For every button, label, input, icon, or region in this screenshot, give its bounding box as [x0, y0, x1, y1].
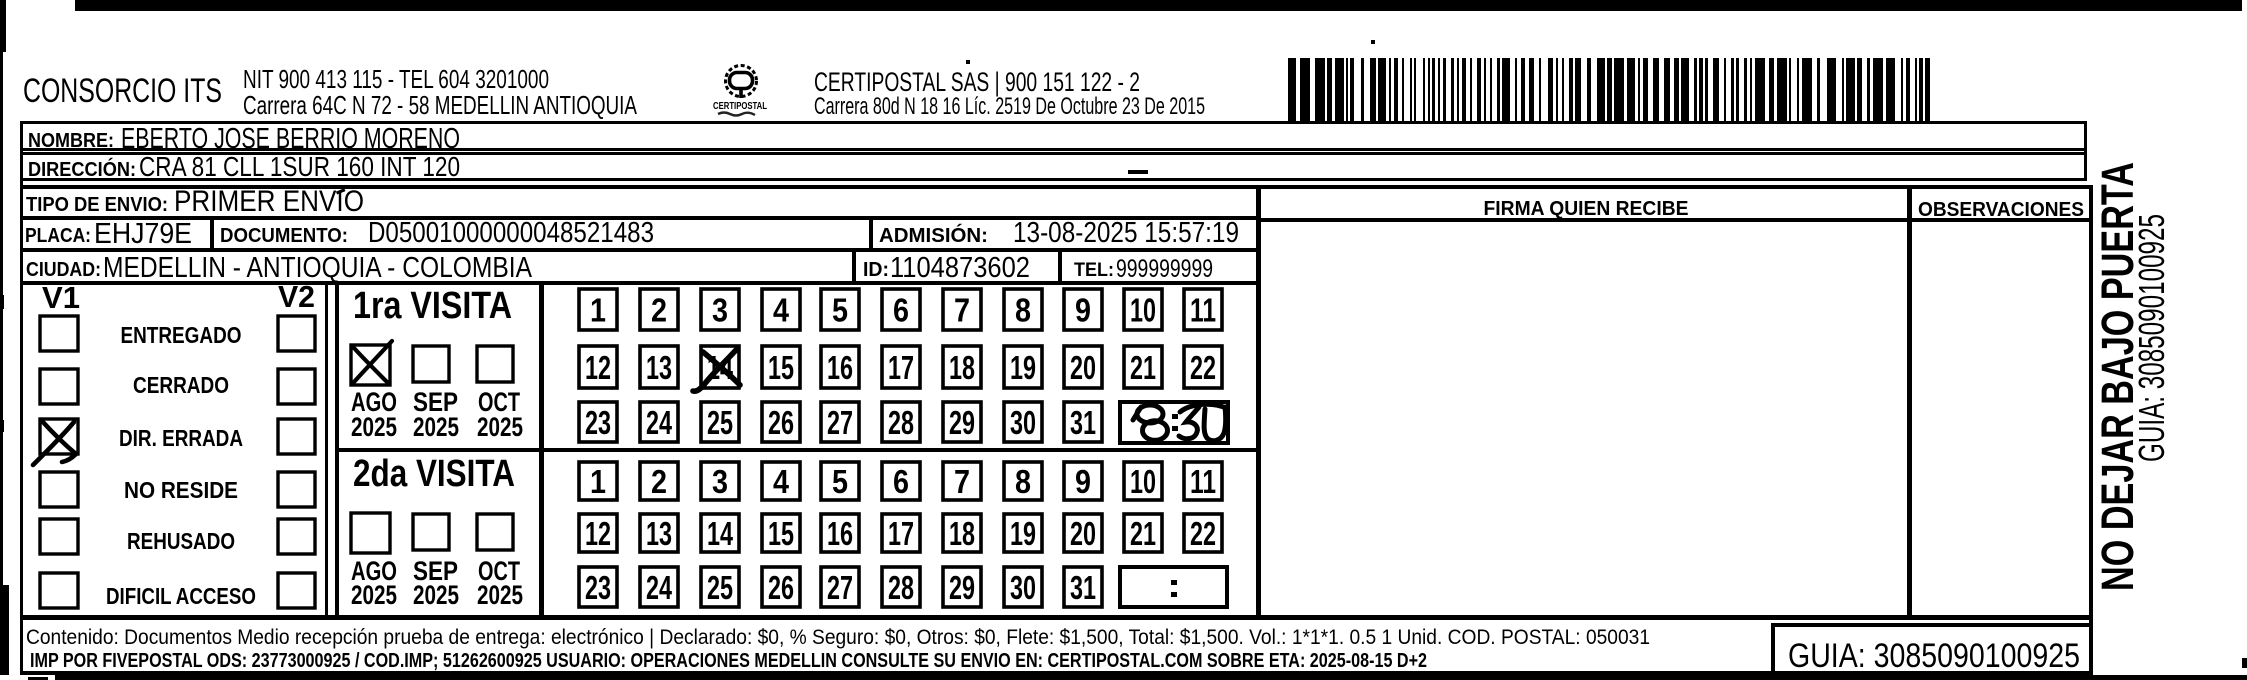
svg-text:ADMISIÓN:: ADMISIÓN:: [879, 223, 988, 247]
svg-text:18: 18: [949, 515, 975, 552]
svg-text:9: 9: [1075, 463, 1091, 500]
svg-text:15: 15: [768, 515, 794, 552]
svg-text:26: 26: [768, 569, 794, 606]
svg-text:10: 10: [1130, 292, 1156, 329]
svg-text:30: 30: [1010, 569, 1036, 606]
svg-text:8: 8: [1015, 463, 1031, 500]
svg-text:12: 12: [585, 515, 611, 552]
svg-text:GUIA: 3085090100925: GUIA: 3085090100925: [2131, 214, 2172, 462]
svg-text:OBSERVACIONES: OBSERVACIONES: [1918, 199, 2084, 221]
svg-text:2025: 2025: [477, 412, 523, 442]
svg-text:30: 30: [1010, 404, 1036, 441]
svg-text:28: 28: [888, 569, 914, 606]
svg-text:13-08-2025 15:57:19: 13-08-2025 15:57:19: [1013, 217, 1239, 249]
svg-text:23: 23: [585, 404, 611, 441]
svg-text:17: 17: [888, 515, 914, 552]
svg-text:FIRMA QUIEN RECIBE: FIRMA QUIEN RECIBE: [1484, 198, 1689, 220]
svg-text:V1: V1: [42, 280, 80, 315]
svg-text:V2: V2: [278, 279, 315, 314]
svg-text:1: 1: [590, 292, 606, 329]
svg-text:EHJ79E: EHJ79E: [94, 218, 192, 250]
svg-text:14: 14: [707, 515, 733, 552]
svg-text:NOMBRE:: NOMBRE:: [28, 130, 114, 152]
svg-text:2: 2: [651, 292, 667, 329]
svg-text:13: 13: [646, 515, 672, 552]
svg-text:DIR. ERRADA: DIR. ERRADA: [119, 425, 243, 451]
svg-text:2025: 2025: [477, 580, 523, 610]
svg-text:27: 27: [827, 569, 853, 606]
svg-text:7: 7: [954, 463, 970, 500]
svg-text:9: 9: [1075, 292, 1091, 329]
svg-text:2025: 2025: [351, 580, 397, 610]
svg-text:CRA 81 CLL 1SUR 160 INT 120: CRA 81 CLL 1SUR 160 INT 120: [139, 151, 460, 182]
svg-text:DIFICIL ACCESO: DIFICIL ACCESO: [106, 583, 256, 609]
svg-text:ENTREGADO: ENTREGADO: [121, 322, 242, 348]
svg-text:CERRADO: CERRADO: [133, 372, 229, 398]
svg-text:17: 17: [888, 349, 914, 386]
svg-text:IMP POR FIVEPOSTAL ODS: 237730: IMP POR FIVEPOSTAL ODS: 23773000925 / CO…: [30, 650, 1427, 672]
svg-text:7: 7: [954, 292, 970, 329]
svg-text:TIPO DE ENVIO:: TIPO DE ENVIO:: [26, 194, 168, 216]
svg-text:1: 1: [590, 463, 606, 500]
svg-text:29: 29: [949, 404, 975, 441]
svg-text:25: 25: [707, 569, 733, 606]
svg-text:ID:: ID:: [863, 259, 889, 281]
svg-text:CERTIPOSTAL: CERTIPOSTAL: [713, 101, 767, 112]
svg-text:6: 6: [893, 463, 909, 500]
svg-text:31: 31: [1070, 404, 1096, 441]
svg-text:18: 18: [949, 349, 975, 386]
svg-text:3: 3: [712, 292, 728, 329]
svg-text:NO RESIDE: NO RESIDE: [124, 477, 238, 503]
svg-text:16: 16: [827, 349, 853, 386]
svg-text:19: 19: [1010, 515, 1036, 552]
svg-text:5: 5: [832, 292, 848, 329]
svg-text:6: 6: [893, 292, 909, 329]
svg-text:22: 22: [1190, 515, 1216, 552]
svg-text:26: 26: [768, 404, 794, 441]
svg-text:REHUSADO: REHUSADO: [127, 528, 235, 554]
svg-text:20: 20: [1070, 515, 1096, 552]
svg-text:PLACA:: PLACA:: [25, 225, 91, 247]
svg-text:2025: 2025: [413, 580, 459, 610]
svg-text:20: 20: [1070, 349, 1096, 386]
svg-text:Carrera 80d N 18 16 Líc. 2519: Carrera 80d N 18 16 Líc. 2519 De Octubre…: [814, 93, 1205, 120]
svg-text:2025: 2025: [413, 412, 459, 442]
svg-text:12: 12: [585, 349, 611, 386]
svg-text:DOCUMENTO:: DOCUMENTO:: [220, 225, 348, 247]
svg-text:31: 31: [1070, 569, 1096, 606]
svg-text:8: 8: [1015, 292, 1031, 329]
svg-text:13: 13: [646, 349, 672, 386]
svg-text:999999999: 999999999: [1116, 255, 1213, 283]
svg-text:22: 22: [1190, 349, 1216, 386]
svg-text:5: 5: [832, 463, 848, 500]
svg-text:TEL:: TEL:: [1074, 260, 1114, 281]
svg-text:1ra VISITA: 1ra VISITA: [353, 285, 512, 327]
svg-text:4: 4: [773, 463, 790, 500]
svg-text:GUIA: 3085090100925: GUIA: 3085090100925: [1788, 637, 2080, 675]
svg-text:3: 3: [712, 463, 728, 500]
svg-text:2da VISITA: 2da VISITA: [353, 453, 515, 495]
svg-text:27: 27: [827, 404, 853, 441]
svg-text:D05001000000048521483: D05001000000048521483: [368, 217, 654, 249]
svg-text:16: 16: [827, 515, 853, 552]
svg-text:21: 21: [1130, 349, 1156, 386]
svg-text:15: 15: [768, 349, 794, 386]
svg-text:23: 23: [585, 569, 611, 606]
svg-text:24: 24: [646, 569, 672, 606]
svg-text:24: 24: [646, 404, 672, 441]
svg-text:MEDELLIN - ANTIOQUIA - COLOMBI: MEDELLIN - ANTIOQUIA - COLOMBIA: [103, 252, 533, 284]
svg-text:21: 21: [1130, 515, 1156, 552]
svg-text:Carrera 64C N 72 - 58 MEDELLIN: Carrera 64C N 72 - 58 MEDELLIN ANTIOQUIA: [243, 90, 637, 120]
svg-text:11: 11: [1190, 463, 1216, 500]
svg-text:2: 2: [651, 463, 667, 500]
svg-text:DIRECCIÓN:: DIRECCIÓN:: [28, 157, 136, 181]
svg-text:11: 11: [1190, 292, 1216, 329]
svg-text:28: 28: [888, 404, 914, 441]
svg-text:4: 4: [773, 292, 790, 329]
svg-text:1104873602: 1104873602: [890, 252, 1030, 284]
svg-text:29: 29: [949, 569, 975, 606]
svg-text:CIUDAD:: CIUDAD:: [26, 259, 101, 281]
svg-text:19: 19: [1010, 349, 1036, 386]
svg-text:CONSORCIO ITS: CONSORCIO ITS: [23, 72, 222, 110]
svg-text:2025: 2025: [351, 412, 397, 442]
svg-text:10: 10: [1130, 463, 1156, 500]
svg-text:Contenido: Documentos Medio re: Contenido: Documentos Medio recepción pr…: [26, 626, 1650, 649]
svg-text:25: 25: [707, 404, 733, 441]
svg-text:PRIMER ENVÍO: PRIMER ENVÍO: [174, 185, 364, 218]
